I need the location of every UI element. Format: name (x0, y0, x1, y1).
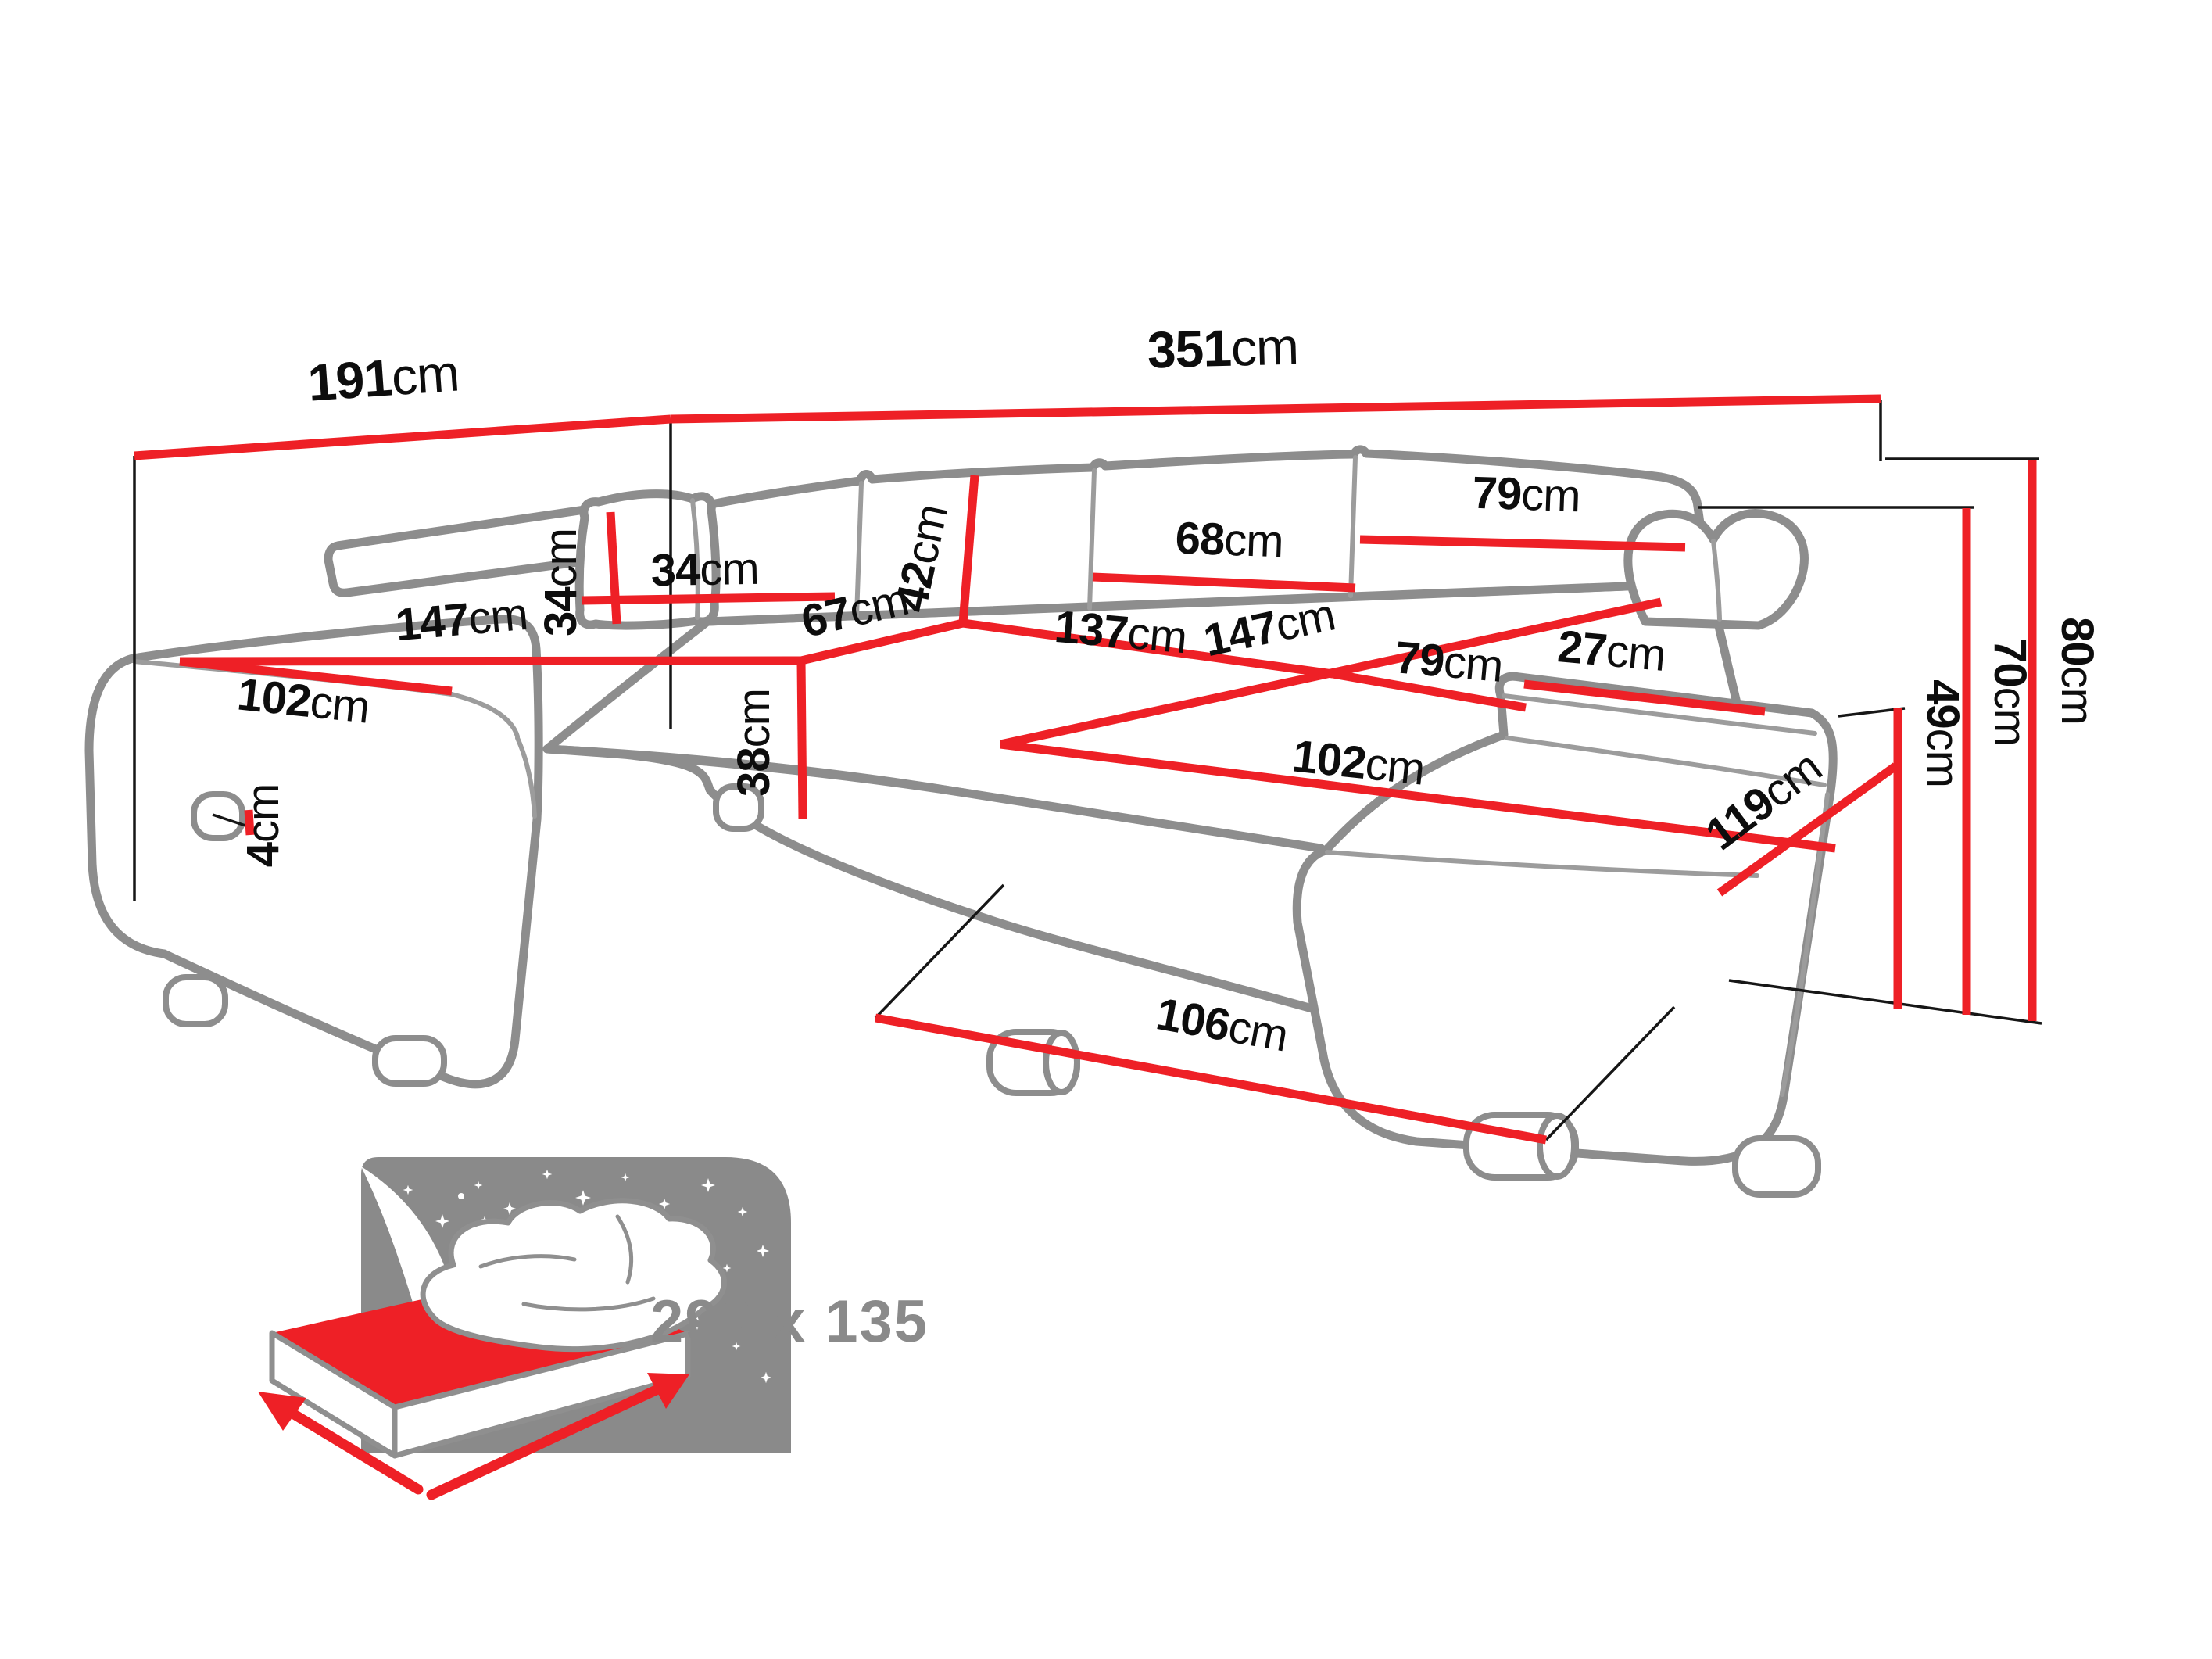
sofa-leg (1735, 1138, 1818, 1195)
dim-unit: cm (728, 689, 779, 747)
dim-label-back-cushion-right: 79cm (1472, 468, 1581, 522)
dim-number: 351 (1147, 319, 1232, 379)
dim-unit: cm (1230, 317, 1299, 376)
dim-number: 79 (1393, 632, 1446, 686)
dim-label-back-cushion-left: 68cm (1175, 513, 1284, 568)
dim-unit: cm (308, 676, 372, 733)
dim-label-right-seat-width: 79cm (1393, 632, 1505, 692)
dim-number: 27 (1555, 621, 1609, 675)
dim-line-147-left (180, 661, 801, 661)
dim-unit: cm (1520, 469, 1581, 522)
dim-unit: cm (1917, 729, 1968, 787)
dim-label-leg-height: 4cm (238, 784, 288, 868)
dim-unit: cm (1126, 607, 1189, 663)
dim-number: 34 (650, 544, 700, 596)
dim-unit: cm (2052, 666, 2103, 725)
dim-label-total-width: 351cm (1147, 317, 1299, 378)
dim-unit: cm (1225, 1001, 1291, 1061)
dim-label-seat-height: 38cm (728, 689, 779, 797)
dim-unit: cm (1223, 514, 1284, 568)
dim-number: 70 (1985, 638, 2035, 687)
dim-number: 102 (1290, 730, 1369, 788)
dim-unit: cm (389, 343, 460, 406)
dim-label-armrest-height: 49cm (1917, 679, 1968, 787)
sleeping-area-label: 293 x 135 (650, 1288, 929, 1355)
bed-icon: 293 x 135 (258, 1157, 929, 1495)
dim-number: 68 (1175, 513, 1226, 565)
dim-unit: cm (1604, 625, 1667, 681)
diagram-canvas: 191cm 351cm 68cm 79cm 34cm 34cm 147cm 10… (0, 0, 2212, 1659)
dim-number: 49 (1917, 679, 1968, 729)
dim-number: 79 (1472, 468, 1523, 520)
dim-number: 34 (535, 587, 586, 636)
dim-unit: cm (700, 543, 759, 595)
dim-unit: cm (1441, 636, 1505, 692)
sofa-leg (375, 1038, 444, 1084)
dim-unit: cm (238, 784, 288, 843)
dim-label-total-height: 80cm (2052, 617, 2103, 725)
dim-label-backrest-height: 70cm (1985, 638, 2035, 746)
dim-number: 38 (728, 747, 779, 797)
dim-line-38 (801, 661, 803, 819)
dim-label-armrest-width: 27cm (1555, 621, 1667, 681)
dim-number: 4 (238, 842, 288, 867)
sofa-dimension-diagram: 191cm 351cm 68cm 79cm 34cm 34cm 147cm 10… (0, 0, 2212, 1659)
dim-number: 102 (235, 668, 313, 726)
dim-label-pillow-width: 34cm (650, 543, 759, 596)
dim-number: 137 (1053, 601, 1130, 658)
dim-number: 147 (393, 593, 471, 650)
dim-number: 80 (2052, 617, 2103, 666)
dim-label-left-section-width: 191cm (306, 343, 460, 411)
dim-unit: cm (467, 589, 530, 644)
dim-number: 106 (1152, 988, 1233, 1051)
sofa-outline (89, 450, 1833, 1195)
dim-number: 191 (306, 348, 393, 411)
dim-unit: cm (535, 529, 586, 587)
sofa-leg (166, 977, 225, 1024)
dim-unit: cm (1363, 738, 1427, 795)
dim-line-351 (671, 399, 1881, 419)
dim-line-191 (134, 419, 671, 456)
dim-label-pillow-height: 34cm (535, 529, 586, 636)
dim-unit: cm (1985, 687, 2035, 746)
